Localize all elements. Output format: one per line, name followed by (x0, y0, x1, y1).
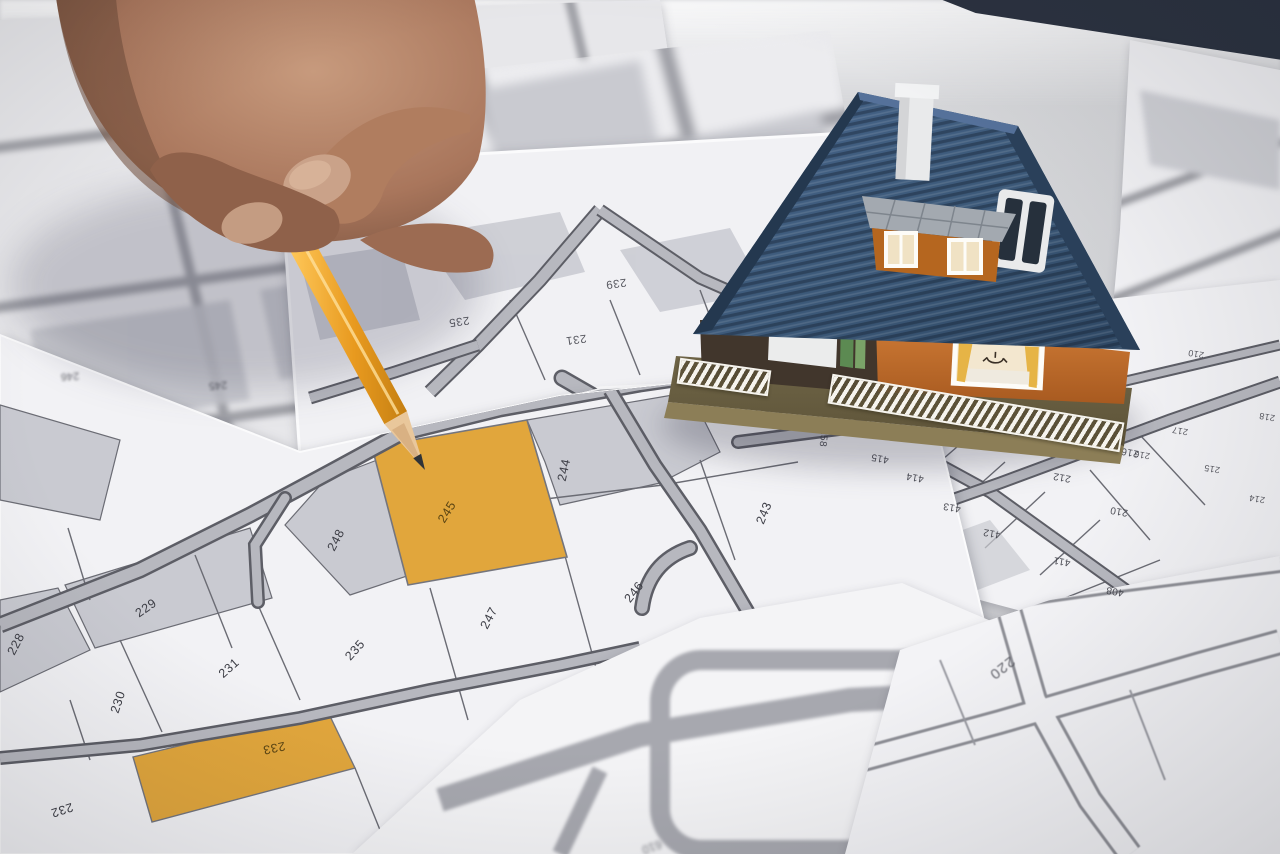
photo-scene: 610 248245244243246247235229228231230233… (0, 0, 1280, 854)
hand-with-pencil (0, 0, 1280, 854)
hand (55, 0, 494, 273)
